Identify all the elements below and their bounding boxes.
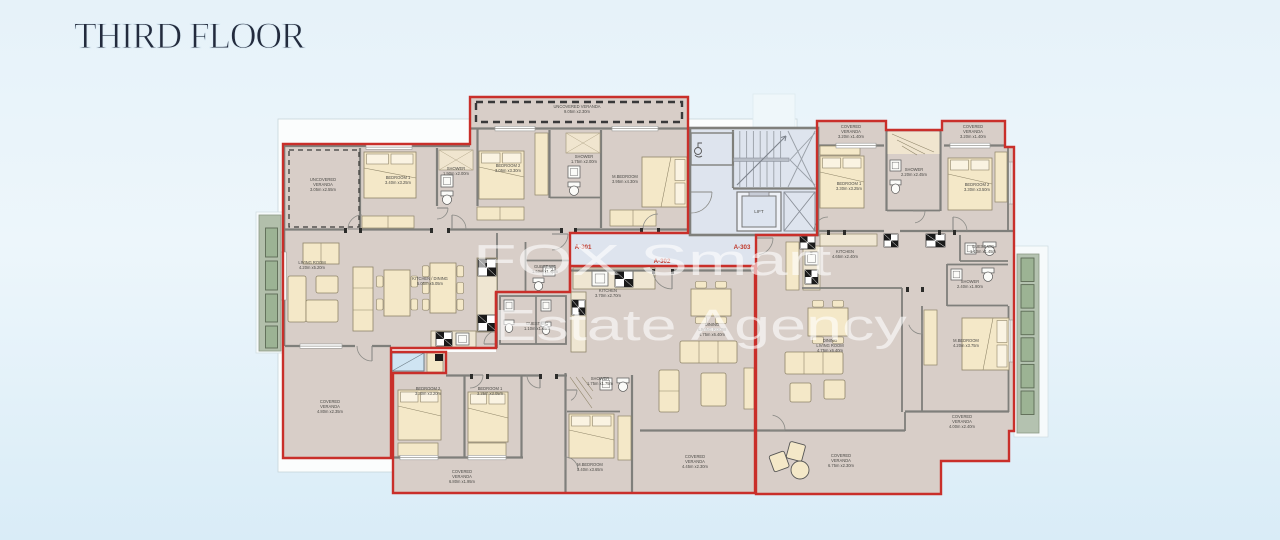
svg-text:M.BEDROOM3.95m x4.30m: M.BEDROOM3.95m x4.30m bbox=[612, 174, 639, 184]
svg-text:COVEREDVERANDA6.80m x1.95m: COVEREDVERANDA6.80m x1.95m bbox=[449, 469, 476, 484]
svg-text:FOX Smart: FOX Smart bbox=[473, 235, 832, 285]
svg-text:M.BEDROOM4.20m x3.75m: M.BEDROOM4.20m x3.75m bbox=[953, 338, 980, 348]
svg-text:BEDROOM 23.05m x3.30m: BEDROOM 23.05m x3.30m bbox=[495, 163, 522, 173]
svg-text:LIVING ROOM4.20m x5.20m: LIVING ROOM4.20m x5.20m bbox=[298, 260, 326, 270]
svg-text:Estate Agency: Estate Agency bbox=[493, 300, 907, 349]
svg-text:BEDROOM 13.40m x3.25m: BEDROOM 13.40m x3.25m bbox=[385, 175, 412, 185]
svg-text:COVEREDVERANDA4.45m x2.30m: COVEREDVERANDA4.45m x2.30m bbox=[682, 454, 709, 469]
svg-text:UNCOVEREDVERANDA3.05m x2.55m: UNCOVEREDVERANDA3.05m x2.55m bbox=[310, 177, 337, 192]
svg-text:BEDROOM 23.30m x3.20m: BEDROOM 23.30m x3.20m bbox=[415, 386, 442, 396]
svg-text:LIFT: LIFT bbox=[754, 209, 764, 214]
svg-text:COVEREDVERANDA3.20m x1.40m: COVEREDVERANDA3.20m x1.40m bbox=[960, 124, 987, 139]
svg-text:BEDROOM 13.30m x3.25m: BEDROOM 13.30m x3.25m bbox=[836, 181, 863, 191]
svg-text:COVEREDVERANDA6.75m x2.30m: COVEREDVERANDA6.75m x2.30m bbox=[828, 453, 855, 468]
svg-text:COVEREDVERANDA4.80m x2.35m: COVEREDVERANDA4.80m x2.35m bbox=[317, 399, 344, 414]
svg-text:COVEREDVERANDA3.20m x1.40m: COVEREDVERANDA3.20m x1.40m bbox=[838, 124, 865, 139]
svg-text:THIRD FLOOR: THIRD FLOOR bbox=[74, 16, 306, 57]
svg-text:BEDROOM 23.30m x3.50m: BEDROOM 23.30m x3.50m bbox=[964, 182, 991, 192]
svg-text:M.BEDROOM3.40m x3.65m: M.BEDROOM3.40m x3.65m bbox=[577, 462, 604, 472]
svg-text:BEDROOM 13.35m x3.05m: BEDROOM 13.35m x3.05m bbox=[477, 386, 504, 396]
svg-text:KITCHEN / DINING5.05m x5.05m: KITCHEN / DINING5.05m x5.05m bbox=[412, 276, 448, 286]
svg-text:GUEST WC1.10m x1.45m: GUEST WC1.10m x1.45m bbox=[970, 244, 997, 254]
svg-text:COVEREDVERANDA4.00m x2.40m: COVEREDVERANDA4.00m x2.40m bbox=[949, 414, 976, 429]
